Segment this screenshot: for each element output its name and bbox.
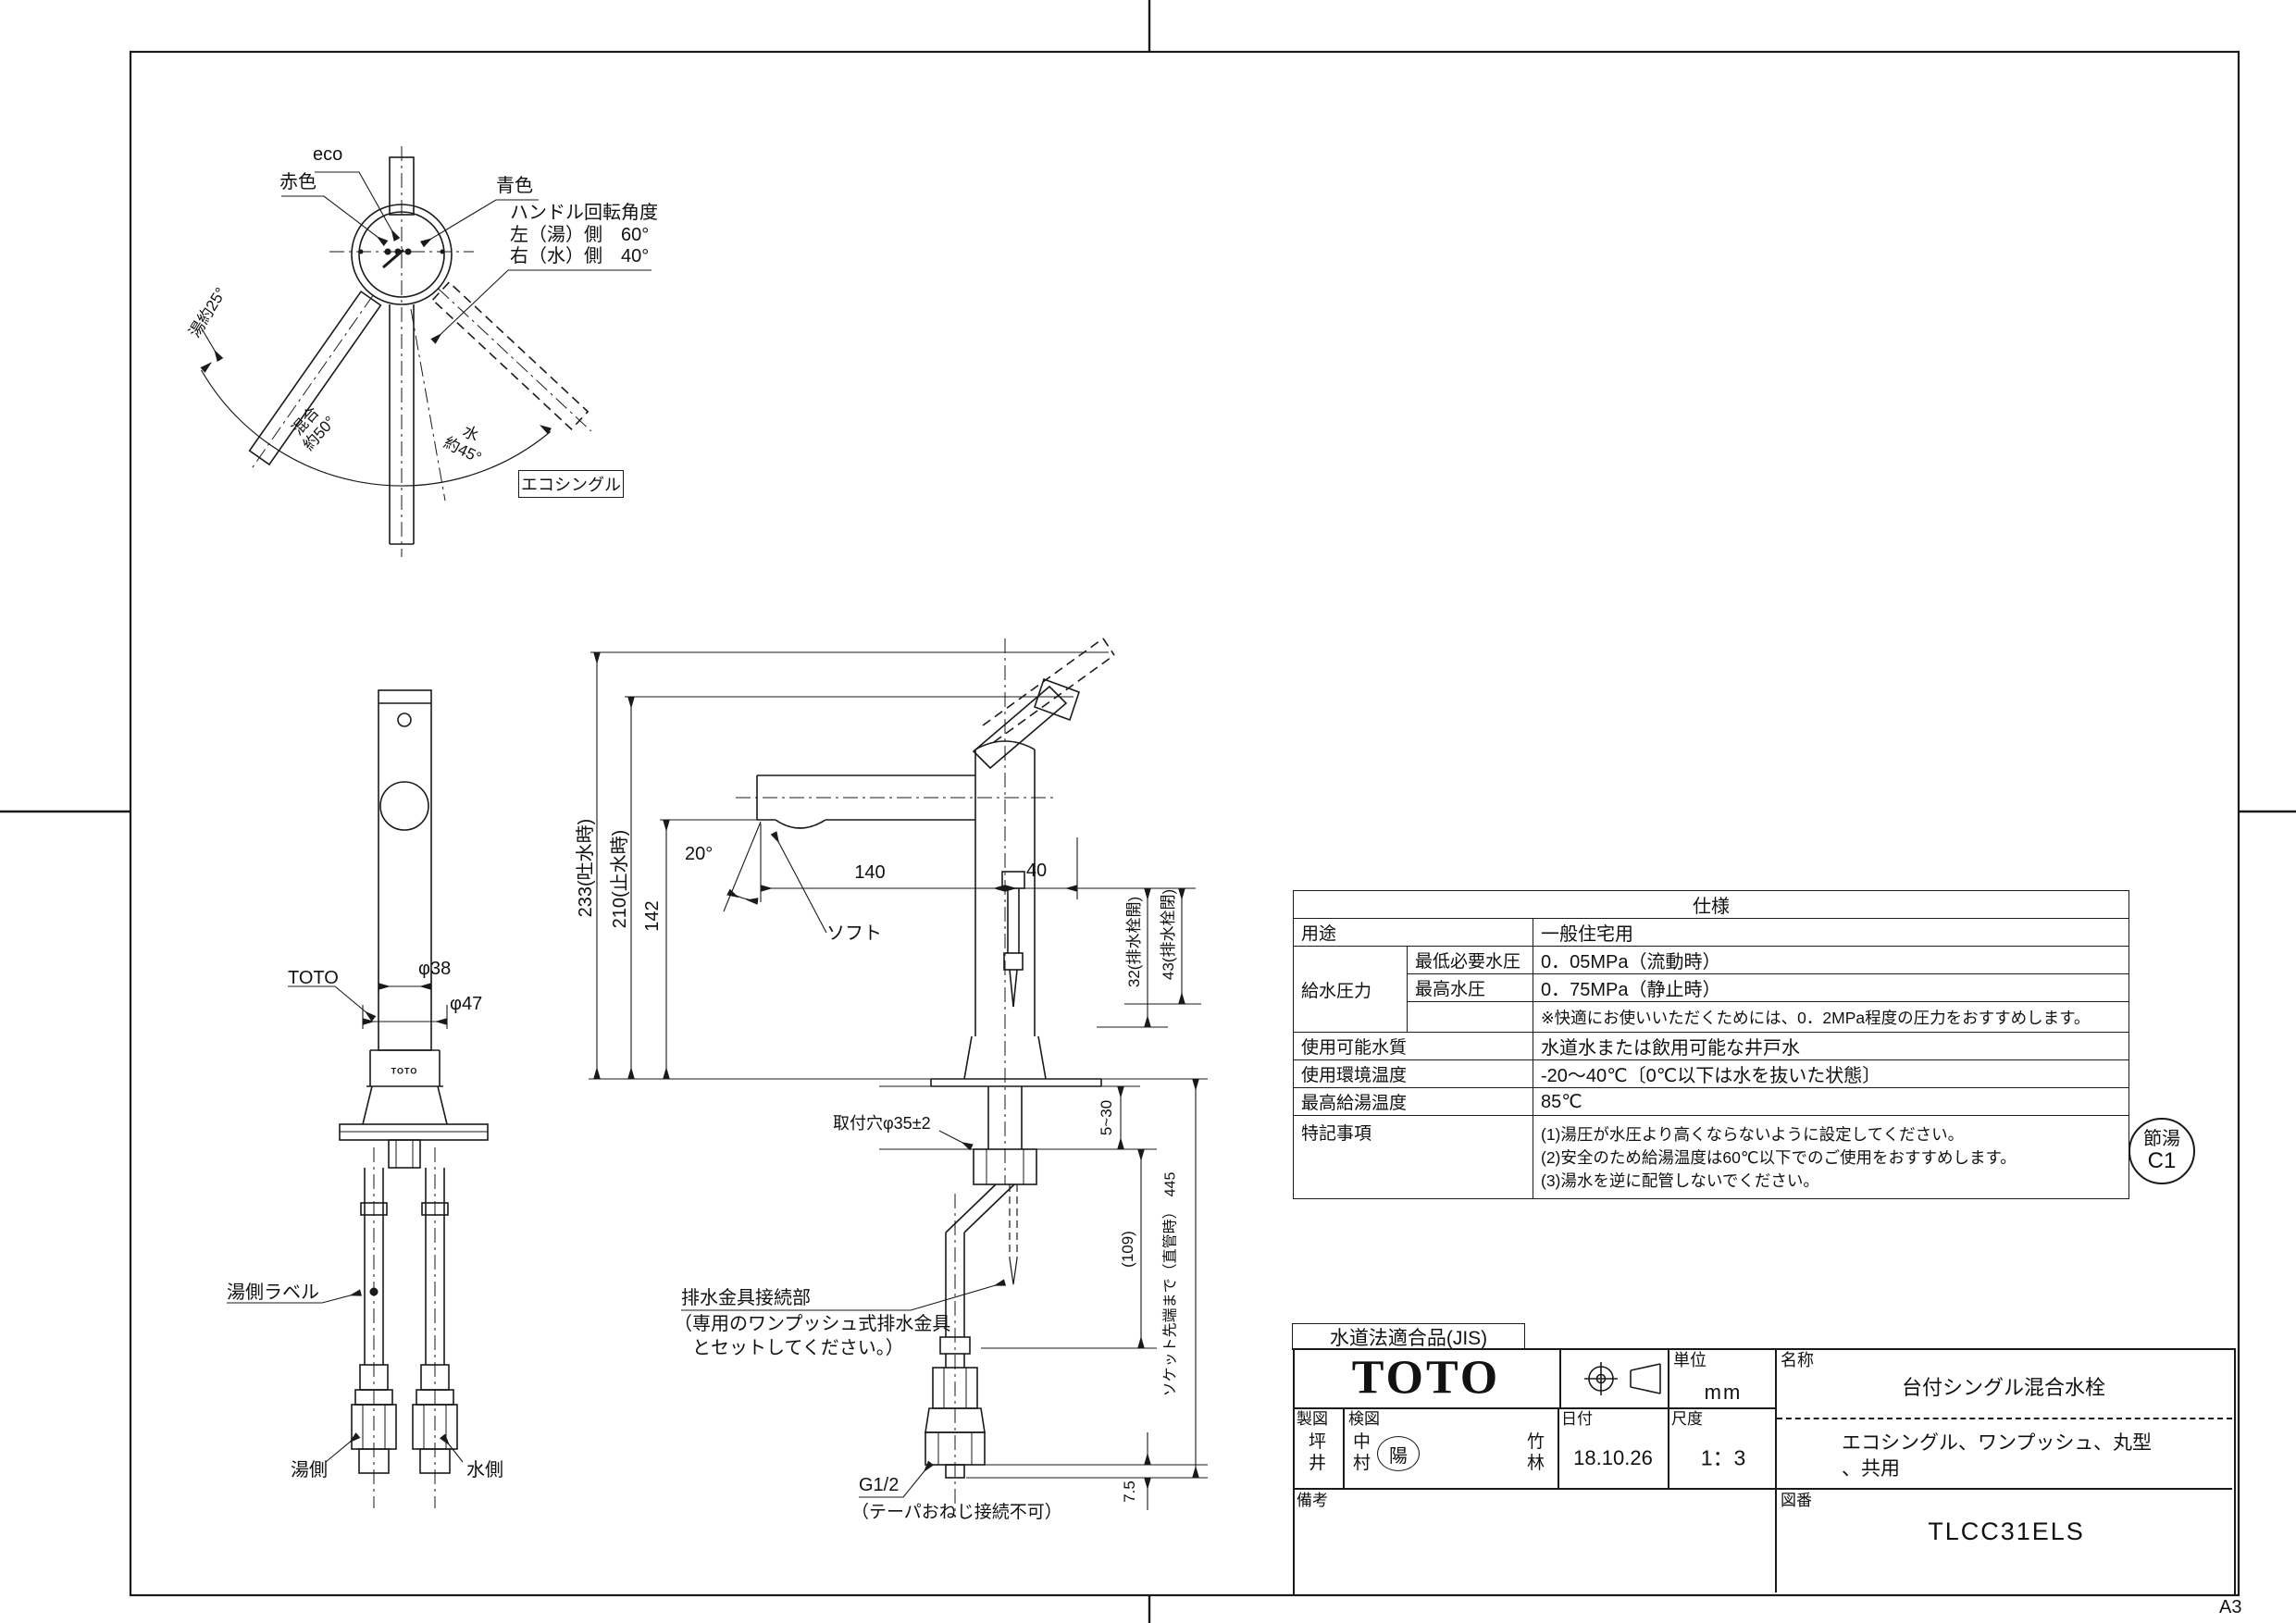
spec-table: 仕様 用途 一般住宅用 給水圧力 最低必要水圧 0．05MPa（流動時） 最高水…: [1293, 890, 2129, 1199]
dim-40: 40: [1026, 861, 1047, 883]
spec-max: 0．75MPa（静止時）: [1533, 974, 2129, 1002]
dim-140: 140: [854, 862, 885, 885]
faucet-side-view: [589, 638, 1208, 1518]
checker2-name: 竹 林: [1527, 1432, 1545, 1475]
drafter-label: 製図: [1297, 1410, 1328, 1429]
hot-label-note: 湯側ラベル: [227, 1282, 319, 1305]
dim-445-socket: ソケット先端まで（直管時） 445: [1163, 1172, 1181, 1397]
water-side-label: 水側: [466, 1460, 503, 1482]
checker1-name: 中 村: [1353, 1432, 1371, 1475]
dia38-dim: φ38: [418, 959, 451, 981]
red-color-label: 赤色: [279, 172, 316, 194]
checker-stamp: 陽: [1377, 1436, 1420, 1471]
spec-env: -20～40℃〔0℃以下は水を抜いた状態〕: [1533, 1060, 2129, 1088]
dim-7-5: 7.5: [1121, 1481, 1139, 1503]
scale-label: 尺度: [1671, 1410, 1703, 1429]
body-logo: TOTO: [391, 1067, 418, 1077]
spec-empty-cell: [1408, 1002, 1533, 1033]
drawing-sheet: eco 赤色 青色 ハンドル回転角度 左（湯）側 60° 右（水）側 40° 湯…: [0, 0, 2296, 1623]
spec-notes-label: 特記事項: [1294, 1116, 1533, 1199]
rotation-left: 左（湯）側 60°: [510, 225, 649, 247]
spec-hotmax-label: 最高給湯温度: [1294, 1088, 1533, 1116]
toto-logo: TOTO: [1352, 1349, 1500, 1406]
number-label: 図番: [1781, 1492, 1812, 1510]
drain-note-3: とセットしてください。）: [674, 1338, 904, 1360]
spec-pressure-note: ※快適にお使いいただくためには、0．2MPa程度の圧力をおすすめします。: [1533, 1002, 2129, 1033]
spec-max-label: 最高水圧: [1408, 974, 1533, 1002]
name-label: 名称: [1781, 1351, 1814, 1370]
spec-min-label: 最低必要水圧: [1408, 947, 1533, 974]
remarks-label: 備考: [1297, 1492, 1328, 1510]
rotation-title: ハンドル回転角度: [510, 203, 658, 225]
drain-note-2: （専用のワンプッシュ式排水金具: [674, 1314, 950, 1336]
dim-20deg: 20°: [685, 844, 713, 866]
spec-min: 0．05MPa（流動時）: [1533, 947, 2129, 974]
unit-label: 単位: [1673, 1351, 1706, 1370]
spec-env-label: 使用環境温度: [1294, 1060, 1533, 1088]
dim-43-closed: 43(排水栓閉): [1160, 889, 1178, 980]
dim-233: 233(吐水時): [576, 819, 598, 918]
badge-line2: C1: [2148, 1149, 2177, 1172]
spec-note-3: (3)湯水を逆に配管しないでください。: [1541, 1169, 2121, 1192]
dim-142: 142: [642, 900, 664, 931]
spec-note-1: (1)湯圧が水圧より高くならないように設定してください。: [1541, 1122, 2121, 1146]
sheet-size-label: A3: [2219, 1597, 2241, 1619]
faucet-front-view: [227, 690, 488, 1508]
scale-value: 1：3: [1701, 1445, 1746, 1470]
water-saving-badge: 節湯 C1: [2128, 1118, 2195, 1184]
spec-usage-label: 用途: [1294, 919, 1533, 947]
dim-5-30: 5~30: [1098, 1100, 1116, 1135]
drawing-number: TLCC31ELS: [1928, 1518, 2085, 1547]
checker-label: 検図: [1348, 1410, 1380, 1429]
spec-note-2: (2)安全のため給湯温度は60℃以下でのご使用をおすすめします。: [1541, 1146, 2121, 1169]
unit-value: mm: [1705, 1381, 1743, 1405]
dim-32-open: 32(排水栓開): [1125, 897, 1144, 987]
date-label: 日付: [1561, 1410, 1593, 1429]
blue-color-label: 青色: [496, 176, 533, 198]
jis-compliance-label: 水道法適合品(JIS): [1292, 1323, 1525, 1350]
product-subname-2: 、共用: [1842, 1458, 1900, 1481]
drain-note-1: 排水金具接続部: [681, 1288, 811, 1310]
badge-line1: 節湯: [2143, 1130, 2180, 1149]
dim-109: (109): [1119, 1231, 1137, 1268]
spec-pressure-label: 給水圧力: [1294, 947, 1408, 1033]
eco-single-box: エコシングル: [518, 470, 624, 498]
spec-title: 仕様: [1294, 891, 2129, 919]
g12-note: （テーパおねじ接続不可）: [851, 1503, 1062, 1523]
dim-210: 210(止水時): [610, 830, 632, 929]
g12-label: G1/2: [859, 1475, 899, 1497]
dia47-dim: φ47: [450, 994, 482, 1016]
eco-label: eco: [313, 144, 342, 167]
spec-quality: 水道水または飲用可能な井戸水: [1533, 1033, 2129, 1060]
spec-hotmax: 85℃: [1533, 1088, 2129, 1116]
toto-callout: TOTO: [288, 968, 339, 990]
spec-quality-label: 使用可能水質: [1294, 1033, 1533, 1060]
date-value: 18.10.26: [1573, 1446, 1653, 1470]
rotation-right: 右（水）側 40°: [510, 246, 649, 268]
hot-side-label: 湯側: [291, 1460, 328, 1482]
product-subname-1: エコシングル、ワンプッシュ、丸型: [1842, 1432, 2152, 1456]
projection-symbol-icon: [1573, 1353, 1684, 1408]
product-name: 台付シングル混合水栓: [1902, 1376, 2105, 1400]
drafter-name: 坪 井: [1309, 1432, 1326, 1475]
mount-hole-note: 取付穴φ35±2: [833, 1114, 931, 1134]
soft-label: ソフト: [826, 923, 882, 946]
checker-stamp-text: 陽: [1389, 1441, 1408, 1468]
spec-usage: 一般住宅用: [1533, 919, 2129, 947]
